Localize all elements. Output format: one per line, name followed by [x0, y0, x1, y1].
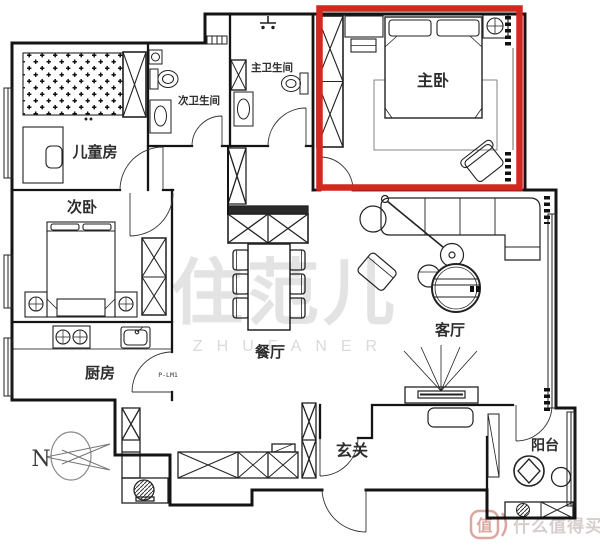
room-label-living: 客厅: [434, 321, 465, 339]
room-label-kitchen: 厨房: [85, 364, 115, 382]
room-label-entry: 玄关: [336, 441, 368, 460]
watermark-center: 住范儿 ZHUFANER: [171, 254, 399, 355]
room-label-second-bathroom: 次卫生间: [178, 94, 220, 107]
room-label-master-bathroom: 主卫生间: [251, 61, 293, 74]
watermark-corner-text: 什么值得买: [513, 516, 600, 536]
watermark-center-latin: ZHUFANER: [193, 338, 391, 355]
watermark-center-hanzi: 住范儿: [171, 254, 399, 334]
room-label-balcony: 阳台: [531, 437, 559, 453]
floorplan-drawing: N 儿童房 次卧 厨房 次卫生间 主卫生间 主卧 餐厅 客厅 玄关 阳台 P-L…: [0, 0, 600, 547]
floorplan-screenshot: N 儿童房 次卧 厨房 次卫生间 主卫生间 主卧 餐厅 客厅 玄关 阳台 P-L…: [0, 0, 600, 547]
watermark-corner-logo: 值: [476, 516, 492, 535]
room-label-master-bedroom: 主卧: [417, 71, 449, 90]
room-label-children: 儿童房: [71, 143, 117, 161]
door-code-label: P-LM1: [158, 371, 178, 379]
north-label: N: [31, 447, 50, 472]
room-label-second-bedroom: 次卧: [67, 198, 97, 216]
